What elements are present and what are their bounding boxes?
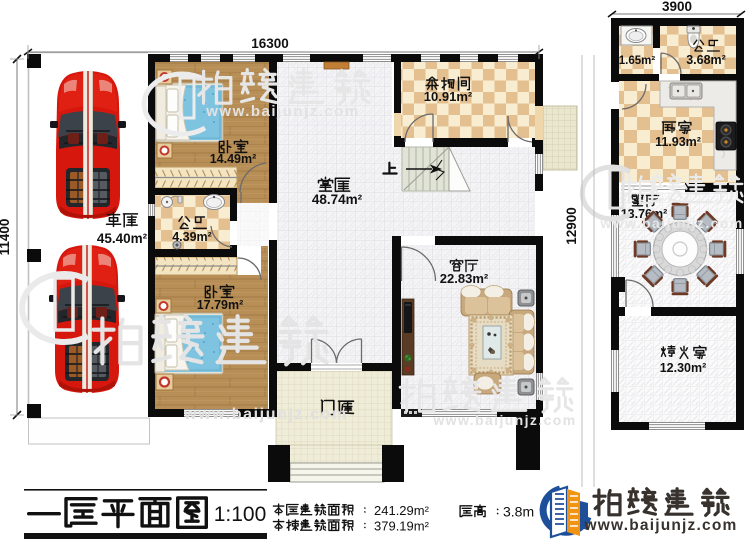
svg-text:www.baijunjz.com: www.baijunjz.com bbox=[584, 517, 738, 534]
svg-text:12.30m²: 12.30m² bbox=[660, 361, 707, 375]
svg-text:www.baijunjz.com: www.baijunjz.com bbox=[183, 406, 348, 423]
svg-text:3.8m: 3.8m bbox=[503, 504, 534, 520]
svg-text:11.93m²: 11.93m² bbox=[655, 135, 701, 149]
svg-text:14.49m²: 14.49m² bbox=[210, 152, 257, 166]
svg-text:www.baijunjz.com: www.baijunjz.com bbox=[205, 103, 359, 120]
svg-text:4.39m²: 4.39m² bbox=[172, 230, 212, 244]
svg-text:22.83m²: 22.83m² bbox=[440, 271, 489, 286]
svg-text:11400: 11400 bbox=[0, 219, 12, 256]
svg-text:3900: 3900 bbox=[662, 0, 692, 14]
svg-text:12900: 12900 bbox=[564, 207, 579, 245]
svg-text:45.40m²: 45.40m² bbox=[97, 231, 148, 246]
svg-text:48.74m²: 48.74m² bbox=[312, 192, 363, 207]
svg-text:3.68m²: 3.68m² bbox=[686, 53, 726, 67]
svg-text:10.91m²: 10.91m² bbox=[424, 89, 473, 104]
svg-text:www.baijunjz.com: www.baijunjz.com bbox=[599, 215, 743, 231]
svg-text:17.79m²: 17.79m² bbox=[197, 298, 244, 312]
svg-text:379.19m²: 379.19m² bbox=[374, 519, 430, 534]
svg-text:241.29m²: 241.29m² bbox=[374, 503, 430, 518]
svg-text:1.65m²: 1.65m² bbox=[619, 55, 656, 67]
svg-text:1:100: 1:100 bbox=[214, 503, 267, 526]
svg-text:16300: 16300 bbox=[251, 36, 289, 51]
svg-text:www.baijunjz.com: www.baijunjz.com bbox=[432, 412, 576, 428]
